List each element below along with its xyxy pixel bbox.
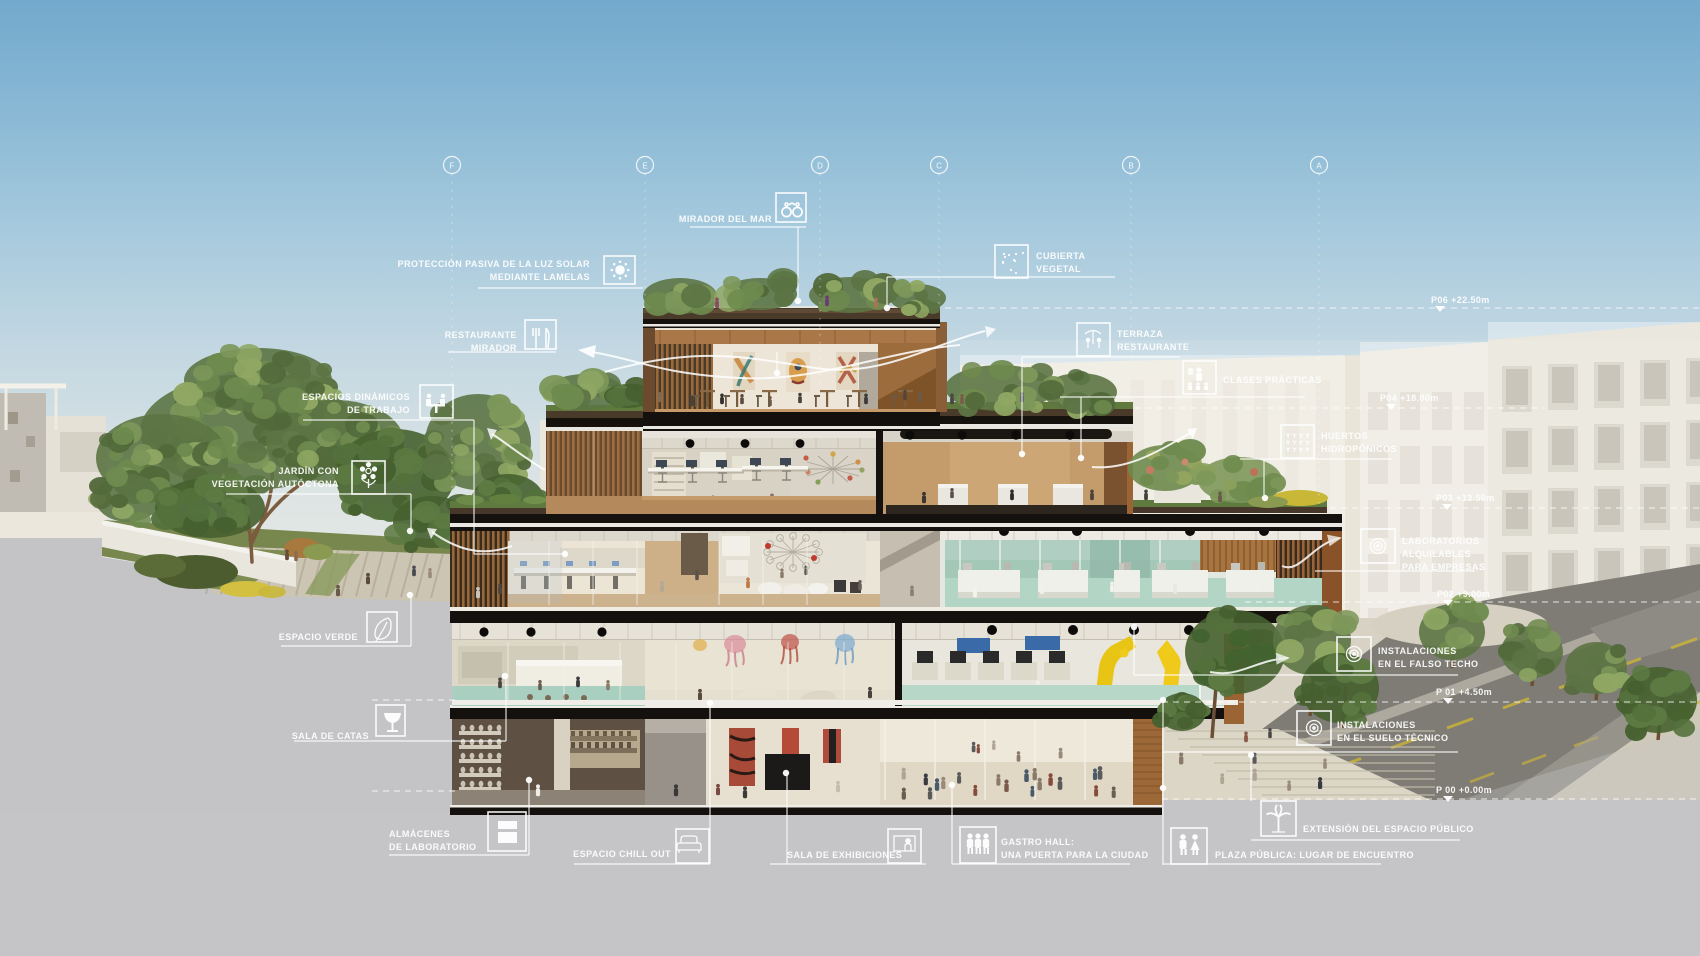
svg-text:ALMÁCENES: ALMÁCENES xyxy=(389,829,450,839)
svg-text:SALA DE CATAS: SALA DE CATAS xyxy=(292,731,369,741)
svg-text:HIDROPÓNICOS: HIDROPÓNICOS xyxy=(1321,443,1397,454)
svg-text:VEGETAL: VEGETAL xyxy=(1036,264,1081,274)
svg-text:RESTAURANTE: RESTAURANTE xyxy=(1117,342,1189,352)
svg-text:D: D xyxy=(817,162,823,171)
svg-text:ESPACIO CHILL OUT: ESPACIO CHILL OUT xyxy=(573,849,671,859)
svg-text:E: E xyxy=(642,162,647,171)
svg-text:C: C xyxy=(936,162,942,171)
svg-text:EXTENSIÓN DEL ESPACIO PÚBLICO: EXTENSIÓN DEL ESPACIO PÚBLICO xyxy=(1303,823,1474,834)
svg-text:RESTAURANTE: RESTAURANTE xyxy=(445,330,517,340)
svg-text:P02 +9.00m: P02 +9.00m xyxy=(1437,589,1490,599)
svg-text:P 00 +0.00m: P 00 +0.00m xyxy=(1436,785,1492,795)
svg-text:CLASES PRÁCTICAS: CLASES PRÁCTICAS xyxy=(1223,375,1322,385)
svg-text:P06 +22.50m: P06 +22.50m xyxy=(1431,295,1490,305)
svg-text:LABORATORIOS: LABORATORIOS xyxy=(1402,536,1480,546)
svg-text:PROTECCIÓN PASIVA DE LA LUZ SO: PROTECCIÓN PASIVA DE LA LUZ SOLAR xyxy=(398,258,590,269)
svg-text:JARDÍN CON: JARDÍN CON xyxy=(278,466,339,476)
svg-text:P 01 +4.50m: P 01 +4.50m xyxy=(1436,687,1492,697)
svg-text:P04 +18.00m: P04 +18.00m xyxy=(1380,393,1439,403)
svg-text:ALQUILABLES: ALQUILABLES xyxy=(1402,549,1471,559)
svg-text:B: B xyxy=(1128,162,1133,171)
svg-text:P03 +13.50m: P03 +13.50m xyxy=(1436,493,1495,503)
svg-text:INSTALACIONES: INSTALACIONES xyxy=(1378,646,1457,656)
svg-text:SALA DE EXHIBICIONES: SALA DE EXHIBICIONES xyxy=(787,850,902,860)
svg-text:DE TRABAJO: DE TRABAJO xyxy=(347,405,410,415)
svg-text:A: A xyxy=(1316,162,1322,171)
svg-text:CUBIERTA: CUBIERTA xyxy=(1036,251,1085,261)
svg-text:MEDIANTE LAMELAS: MEDIANTE LAMELAS xyxy=(490,272,590,282)
svg-text:PLAZA PÚBLICA: LUGAR DE ENCUEN: PLAZA PÚBLICA: LUGAR DE ENCUENTRO xyxy=(1215,849,1414,860)
svg-text:VEGETACIÓN AUTÓCTONA: VEGETACIÓN AUTÓCTONA xyxy=(212,478,339,489)
svg-text:GASTRO HALL:: GASTRO HALL: xyxy=(1001,837,1074,847)
svg-text:MIRADOR DEL MAR: MIRADOR DEL MAR xyxy=(679,214,772,224)
svg-text:F: F xyxy=(450,162,455,171)
svg-text:EN EL FALSO TECHO: EN EL FALSO TECHO xyxy=(1378,659,1479,669)
svg-text:HUERTOS: HUERTOS xyxy=(1321,431,1368,441)
svg-text:EN EL SUELO TÉCNICO: EN EL SUELO TÉCNICO xyxy=(1337,733,1448,743)
svg-text:INSTALACIONES: INSTALACIONES xyxy=(1337,720,1416,730)
svg-text:ESPACIOS DINÁMICOS: ESPACIOS DINÁMICOS xyxy=(302,392,410,402)
svg-text:TERRAZA: TERRAZA xyxy=(1117,329,1163,339)
svg-text:ESPACIO VERDE: ESPACIO VERDE xyxy=(279,632,358,642)
svg-text:DE LABORATORIO: DE LABORATORIO xyxy=(389,842,476,852)
svg-text:UNA PUERTA PARA LA CIUDAD: UNA PUERTA PARA LA CIUDAD xyxy=(1001,850,1149,860)
